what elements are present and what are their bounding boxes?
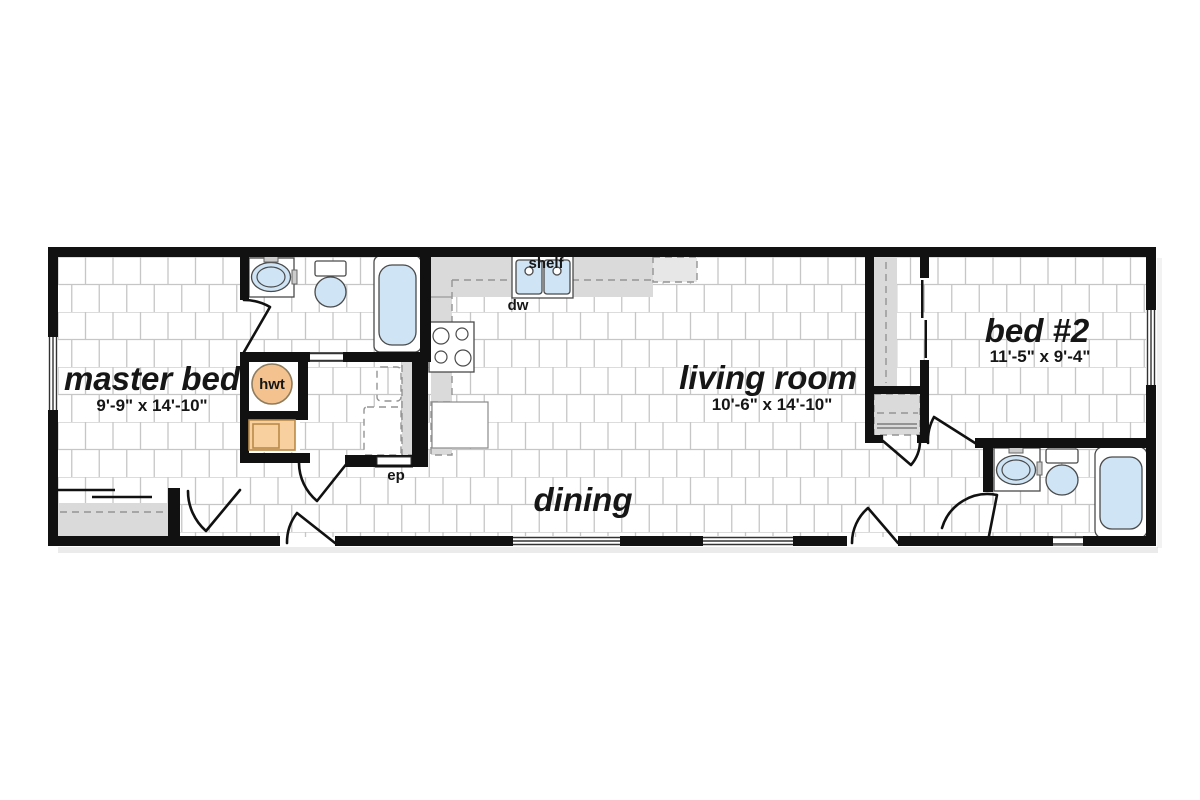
- bed2-label: bed #2: [985, 312, 1090, 349]
- vent-bath2: [1053, 537, 1083, 546]
- refrigerator: [432, 402, 488, 448]
- master-bed-dims: 9'-9" x 14'-10": [96, 396, 207, 415]
- plan-shadow: [58, 547, 1158, 553]
- closet-sliding-door: [921, 280, 924, 318]
- window-left: [48, 337, 58, 410]
- vent-master-bath: [310, 353, 343, 362]
- master-toilet-tank: [315, 261, 346, 276]
- plan-shadow-right: [1157, 258, 1162, 548]
- window-bottom-2: [703, 536, 793, 546]
- water-heater-label: hwt: [259, 376, 285, 393]
- window-right: [1146, 310, 1156, 385]
- floor-plan-drawing: master bed 9'-9" x 14'-10" living room 1…: [0, 0, 1200, 800]
- shelf-label: shelf: [528, 255, 564, 272]
- washer: [249, 420, 295, 450]
- electrical-panel: [375, 457, 413, 466]
- dishwasher-label: dw: [508, 297, 529, 314]
- floor-plan-page: master bed 9'-9" x 14'-10" living room 1…: [0, 0, 1200, 800]
- master-toilet: [315, 277, 346, 307]
- window-bottom-1: [513, 536, 620, 546]
- bath2-toilet: [1046, 465, 1078, 495]
- dining-label: dining: [534, 481, 633, 518]
- closet-sliding-door: [925, 320, 928, 358]
- living-room-dims: 10'-6" x 14'-10": [712, 395, 833, 414]
- master-bed-label: master bed: [64, 360, 241, 397]
- bed2-closet: [874, 257, 897, 386]
- hall-linen-closet: [874, 394, 920, 435]
- bed2-dims: 11'-5" x 9'-4": [990, 347, 1091, 366]
- bath2-toilet-tank: [1046, 449, 1078, 463]
- living-room-label: living room: [679, 359, 857, 396]
- electrical-panel-label: ep: [387, 467, 405, 484]
